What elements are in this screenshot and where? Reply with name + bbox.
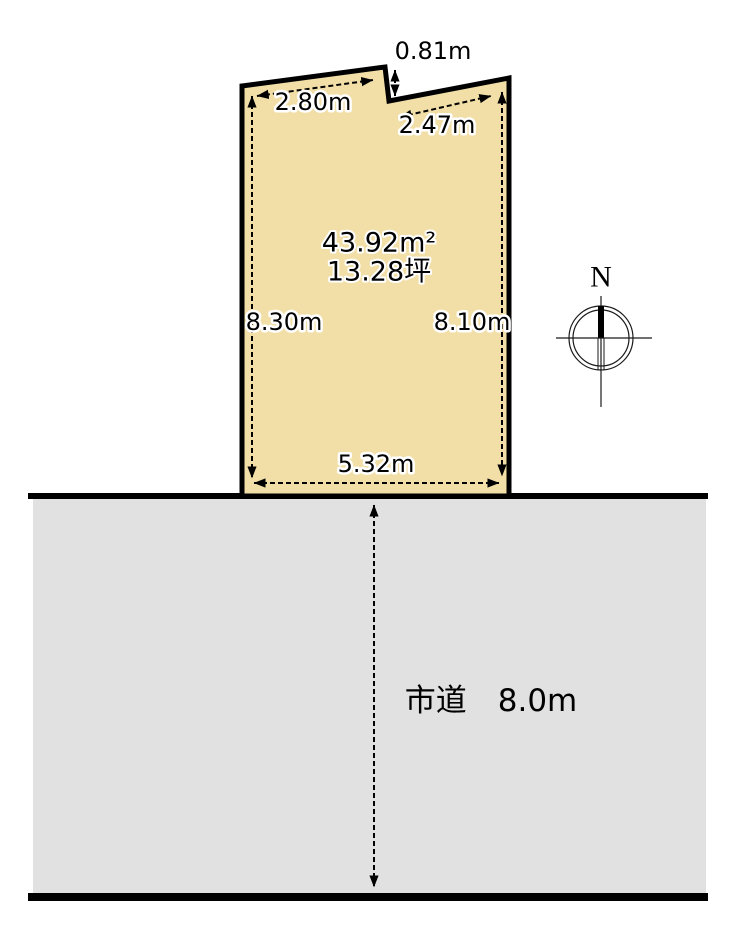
- north-label: N: [590, 261, 612, 294]
- dim-label-left: 8.30m: [246, 308, 323, 336]
- road-surface: [33, 499, 706, 893]
- road: 市道 8.0m: [28, 493, 708, 901]
- compass-needle-north: [598, 306, 604, 338]
- site-plan-svg: 市道 8.0m 0.81m 2.80m 2.47m 8.30m 8.10m 5.…: [0, 0, 740, 941]
- dim-label-top-left: 2.80m: [275, 88, 352, 116]
- compass-rose: N: [556, 261, 652, 408]
- dim-label-right: 8.10m: [434, 308, 511, 336]
- parcel-area-sqm: 43.92m²: [322, 228, 436, 259]
- dim-label-bottom: 5.32m: [338, 450, 415, 478]
- parcel-area-tsubo: 13.28坪: [327, 257, 431, 288]
- dim-label-notch: 0.81m: [395, 37, 472, 65]
- parcel: 0.81m 2.80m 2.47m 8.30m 8.10m 5.32m 43.9…: [242, 37, 510, 496]
- site-plan-diagram: 市道 8.0m 0.81m 2.80m 2.47m 8.30m 8.10m 5.…: [0, 0, 740, 941]
- dim-label-top-right: 2.47m: [399, 111, 476, 139]
- road-edge-bottom: [28, 893, 708, 901]
- road-label: 市道 8.0m: [405, 683, 578, 719]
